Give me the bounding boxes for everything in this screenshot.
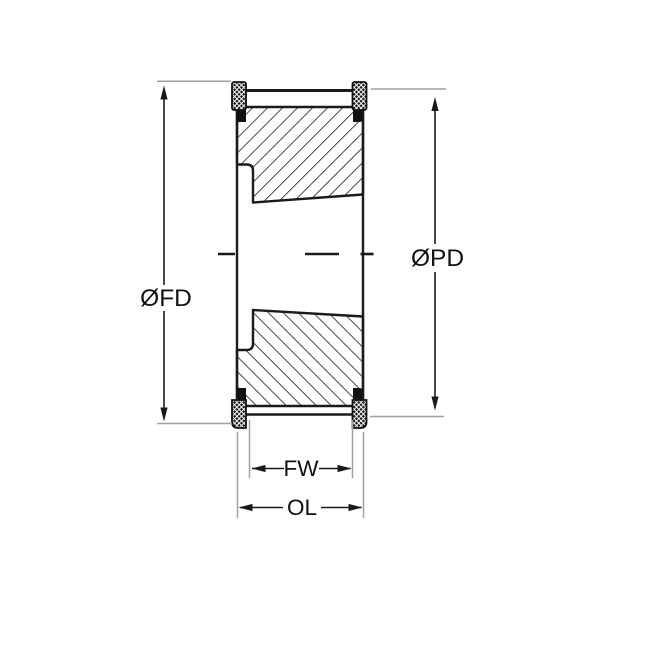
flange-bottom-left	[232, 388, 246, 428]
pd-label: ØPD	[411, 245, 464, 272]
pulley-cross-section-drawing: ØFD ØPD FW OL	[0, 0, 670, 670]
dimension-pitch-diameter: ØPD	[370, 89, 464, 417]
flange-top-right	[353, 82, 367, 122]
flange-bottom-left-knurl	[232, 400, 246, 428]
fw-arrowhead-left	[252, 465, 266, 472]
ol-arrowhead-right	[349, 504, 363, 511]
flange-bottom-right	[353, 388, 367, 428]
fw-arrowhead-right	[338, 465, 352, 472]
flange-bottom-right-knurl	[353, 400, 367, 428]
dimension-flange-diameter: ØFD	[140, 81, 232, 423]
flange-top-left-knurl	[232, 82, 246, 110]
lower-hatched-section	[237, 310, 363, 406]
drawing-canvas: ØFD ØPD FW OL	[0, 0, 670, 670]
fd-arrowhead-up	[160, 86, 167, 100]
pulley-body	[237, 91, 363, 415]
flange-top-left	[232, 82, 246, 122]
flange-top-right-knurl	[353, 82, 367, 110]
upper-hatched-section	[237, 107, 363, 203]
ol-arrowhead-left	[239, 504, 253, 511]
fd-label: ØFD	[140, 285, 192, 312]
ol-label: OL	[287, 495, 317, 520]
fd-arrowhead-down	[160, 408, 167, 422]
dimension-face-width: FW	[250, 420, 353, 481]
pd-arrowhead-up	[431, 97, 438, 111]
pd-arrowhead-down	[431, 397, 438, 411]
fw-label: FW	[284, 456, 320, 481]
